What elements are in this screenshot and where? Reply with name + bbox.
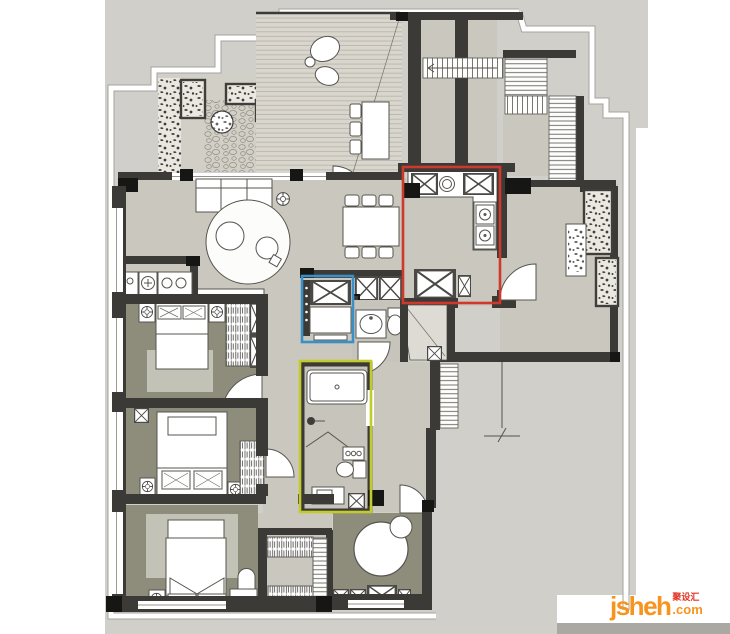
watermark-brand: jsheh bbox=[610, 593, 670, 619]
cabinet bbox=[310, 307, 351, 333]
kitchen-cabinet bbox=[416, 270, 455, 298]
bedroom-1 bbox=[126, 302, 263, 414]
round-lounge bbox=[206, 200, 290, 284]
shoe-cabinet bbox=[440, 364, 458, 428]
bathroom-main bbox=[302, 364, 374, 511]
bed-pillows bbox=[168, 520, 224, 538]
nightstand-lamp bbox=[211, 306, 222, 317]
dining-set bbox=[343, 195, 399, 258]
watermark-logo: jsheh 聚设汇 .com bbox=[610, 593, 703, 619]
floor-plan-image: jsheh 聚设汇 .com bbox=[0, 0, 730, 634]
bathtub bbox=[307, 370, 367, 404]
watermark-tld: .com bbox=[672, 603, 702, 616]
plant-bed bbox=[158, 78, 181, 176]
toilet bbox=[337, 462, 354, 477]
stove bbox=[474, 202, 496, 249]
toilet-tank bbox=[353, 461, 366, 478]
nightstand-lamp bbox=[142, 481, 152, 491]
nightstand-lamp bbox=[141, 306, 152, 317]
closet-wardrobe bbox=[267, 537, 313, 557]
watermark-bar bbox=[557, 623, 730, 634]
floor-plan-drawing bbox=[0, 0, 730, 634]
armchair bbox=[238, 569, 255, 590]
bedroom-master bbox=[118, 505, 334, 610]
deck-table-set bbox=[350, 102, 389, 159]
wood-deck bbox=[256, 12, 402, 199]
ceiling-fan-icon bbox=[277, 193, 290, 206]
nightstand-lamp bbox=[230, 484, 240, 494]
wardrobe bbox=[226, 302, 250, 366]
watermark-cjk: 聚设汇 bbox=[672, 593, 702, 602]
